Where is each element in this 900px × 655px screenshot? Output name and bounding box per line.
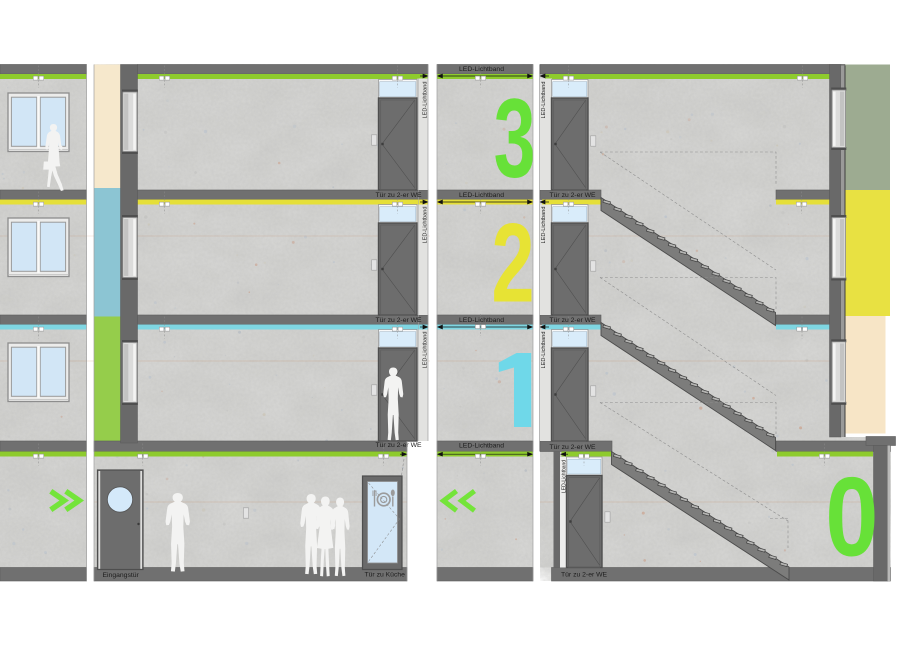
svg-text:Tür zu 2-er WE: Tür zu 2-er WE bbox=[550, 192, 597, 199]
svg-text:LED-Lichtband: LED-Lichtband bbox=[423, 81, 429, 118]
svg-text:Tür zu 2-er WE: Tür zu 2-er WE bbox=[550, 444, 597, 451]
svg-text:LED-Lichtband: LED-Lichtband bbox=[562, 460, 568, 493]
svg-text:Tür zu 2-er WE: Tür zu 2-er WE bbox=[376, 192, 423, 199]
svg-text:Eingangstür: Eingangstür bbox=[103, 572, 140, 579]
svg-text:Tür zu 2-er WE: Tür zu 2-er WE bbox=[376, 317, 423, 324]
svg-text:3: 3 bbox=[494, 76, 536, 201]
svg-text:LED-Lichtband: LED-Lichtband bbox=[541, 206, 547, 243]
svg-text:Tür zu Küche: Tür zu Küche bbox=[365, 572, 406, 579]
svg-text:2: 2 bbox=[492, 201, 535, 326]
svg-text:LED-Lichtband: LED-Lichtband bbox=[459, 443, 504, 450]
svg-text:Tür zu 2-er WE: Tür zu 2-er WE bbox=[561, 572, 608, 579]
svg-text:0: 0 bbox=[825, 455, 878, 580]
svg-text:LED-Lichtband: LED-Lichtband bbox=[541, 331, 547, 368]
svg-text:LED-Lichtband: LED-Lichtband bbox=[459, 66, 504, 73]
svg-text:LED-Lichtband: LED-Lichtband bbox=[541, 81, 547, 118]
svg-text:LED-Lichtband: LED-Lichtband bbox=[423, 206, 429, 243]
svg-text:Tür zu 2-er WE: Tür zu 2-er WE bbox=[376, 442, 423, 449]
svg-text:Tür zu 2-er WE: Tür zu 2-er WE bbox=[550, 317, 597, 324]
svg-text:LED-Lichtband: LED-Lichtband bbox=[423, 331, 429, 368]
